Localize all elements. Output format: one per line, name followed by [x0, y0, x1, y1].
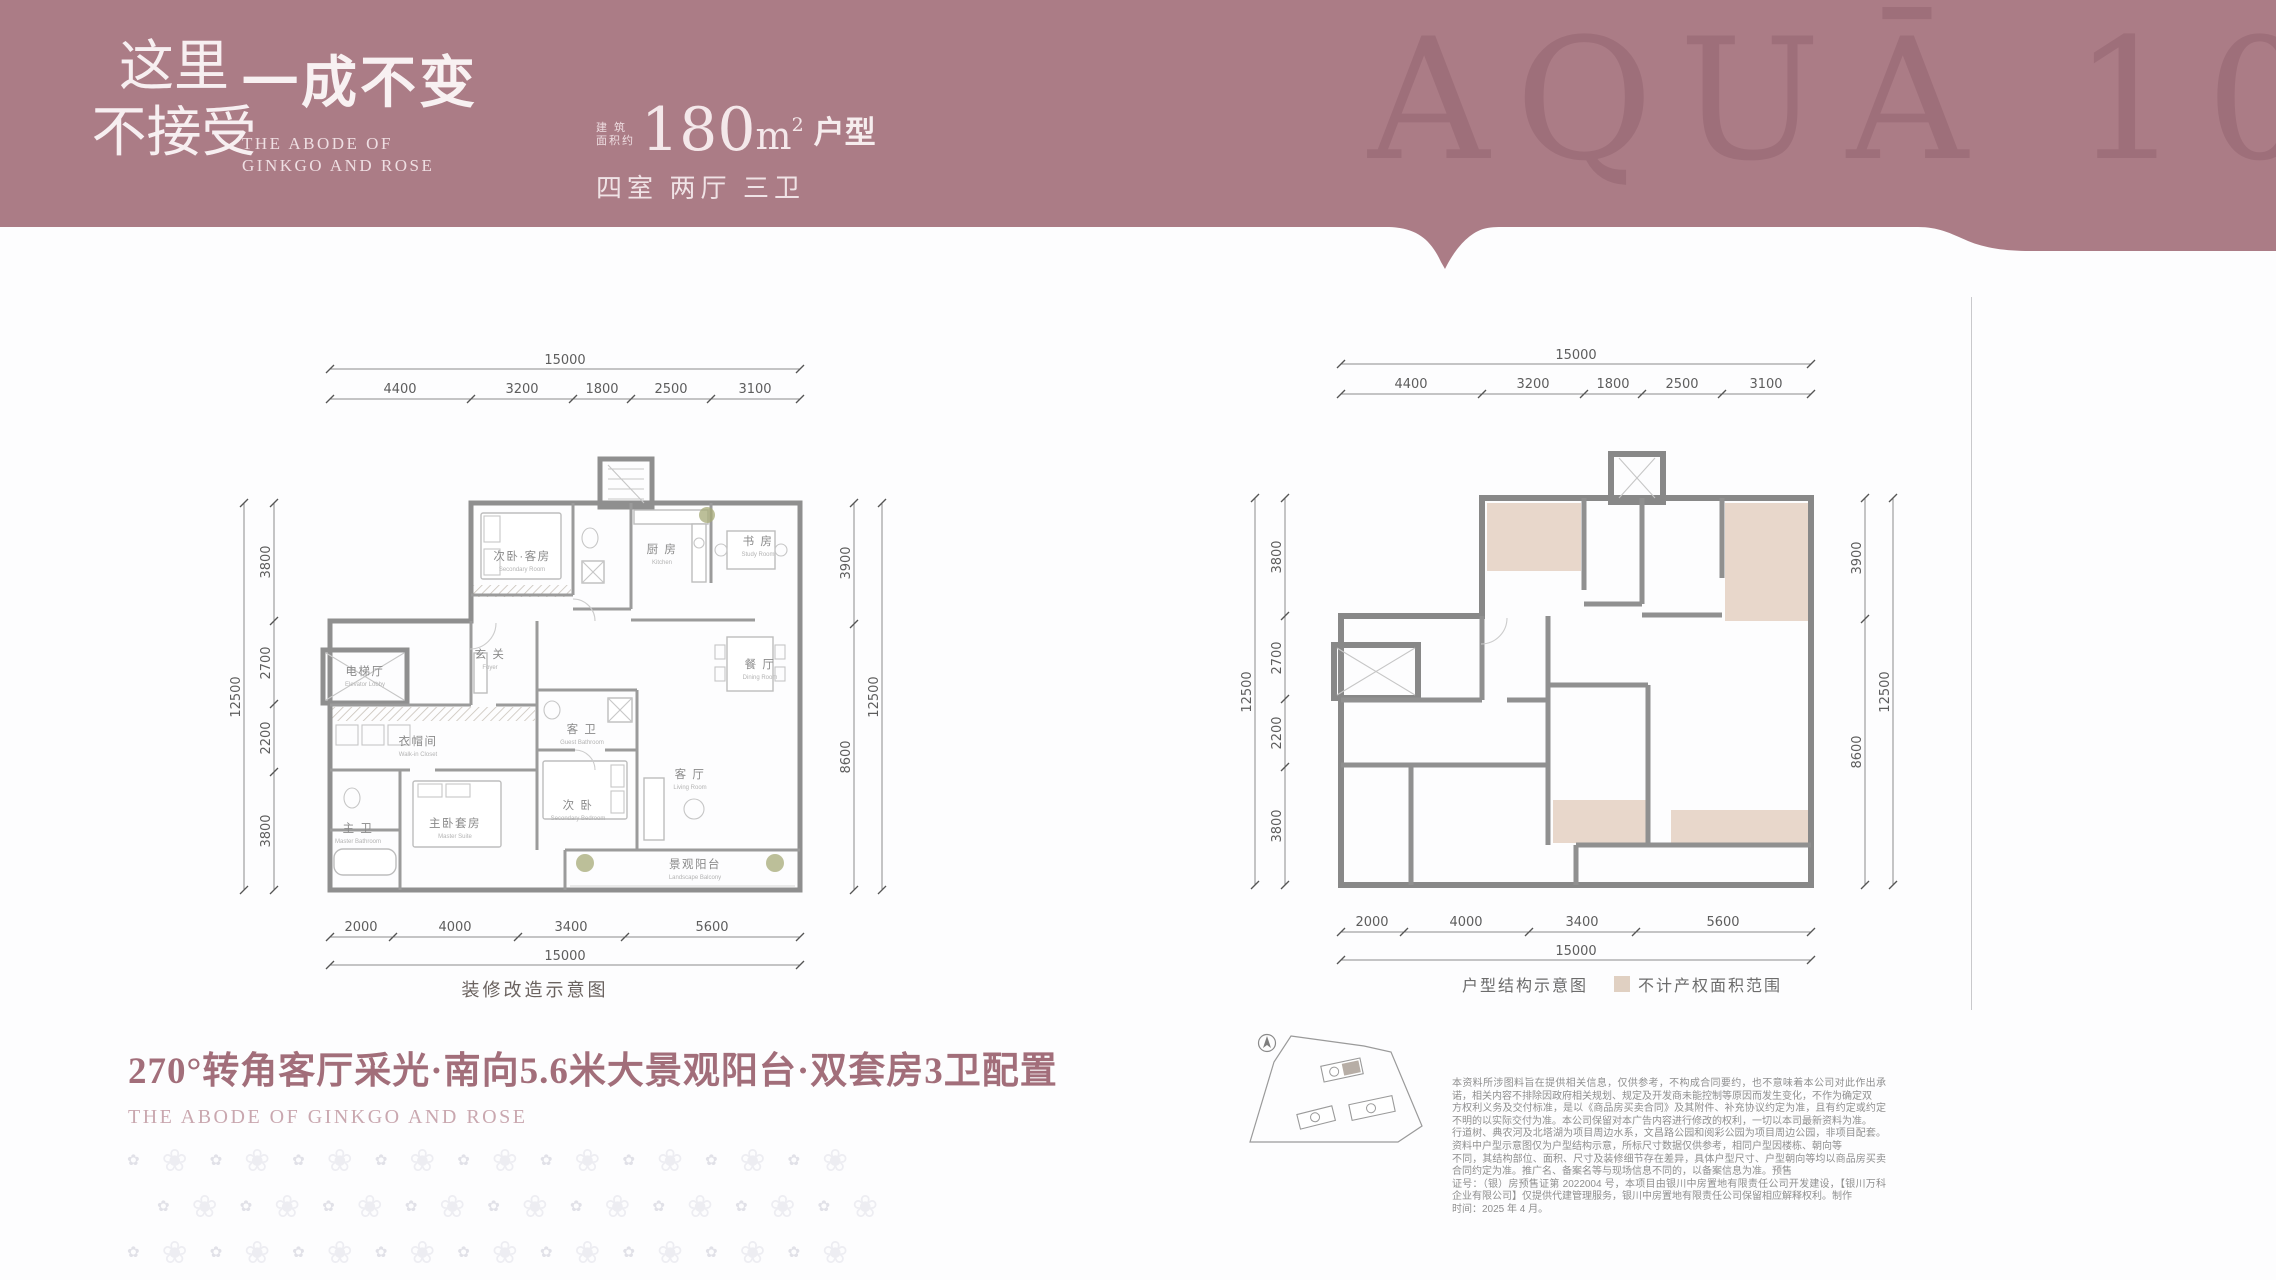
dims-top: 15000 4400 3200 1800 2500 3100: [326, 353, 804, 403]
svg-text:Master Bathroom: Master Bathroom: [335, 839, 381, 845]
svg-text:Guest Bathroom: Guest Bathroom: [560, 740, 604, 746]
svg-text:Secondary Room: Secondary Room: [499, 567, 545, 573]
site-boundary: [1250, 1036, 1422, 1142]
svg-text:电梯厅: 电梯厅: [346, 665, 385, 678]
flower-icon: ❀: [192, 1189, 218, 1224]
flower-icon: ❀: [274, 1189, 300, 1224]
flower-icon: ❀: [492, 1235, 518, 1270]
sofa: [644, 778, 664, 840]
svg-text:Landscape Balcony: Landscape Balcony: [669, 875, 721, 881]
svg-text:次卧·客房: 次卧·客房: [493, 549, 550, 563]
svg-text:15000: 15000: [1555, 348, 1596, 363]
svg-text:3800: 3800: [1270, 809, 1285, 842]
svg-text:3200: 3200: [505, 382, 538, 397]
svg-text:2000: 2000: [1355, 915, 1388, 930]
page-title: 一成不变: [242, 38, 478, 119]
stair-shaft: [600, 459, 652, 507]
rose-icon: ✿: [652, 1198, 665, 1215]
rose-icon: ✿: [210, 1152, 223, 1169]
plant-icon: [766, 854, 784, 872]
flower-icon: ❀: [657, 1143, 683, 1178]
flower-icon: ❀: [162, 1235, 188, 1270]
flower-icon: ❀: [244, 1235, 270, 1270]
svg-text:Elevator Lobby: Elevator Lobby: [345, 682, 385, 688]
flower-icon: ❀: [244, 1143, 270, 1178]
svg-text:8600: 8600: [1850, 735, 1865, 768]
rose-icon: ✿: [405, 1198, 418, 1215]
floor-plan-structure: 15000 4400 3200 1800 2500 3100 12500: [1241, 348, 1941, 1008]
flower-icon: ❀: [492, 1143, 518, 1178]
flower-icon: ❀: [327, 1235, 353, 1270]
svg-text:厨 房: 厨 房: [647, 543, 678, 556]
svg-text:5600: 5600: [695, 920, 728, 935]
svg-text:2200: 2200: [259, 721, 274, 754]
rose-icon: ✿: [622, 1244, 635, 1261]
rose-icon: ✿: [540, 1244, 553, 1261]
flower-icon: ❀: [657, 1235, 683, 1270]
svg-text:景观阳台: 景观阳台: [669, 857, 721, 871]
tagline-block: 270°转角客厅采光·南向5.6米大景观阳台·双套房3卫配置 THE ABODE…: [128, 1040, 1058, 1129]
rose-icon: ✿: [788, 1152, 801, 1169]
svg-text:Walk-in Closet: Walk-in Closet: [399, 752, 438, 758]
flower-icon: ❀: [522, 1189, 548, 1224]
svg-text:Kitchen: Kitchen: [652, 560, 672, 566]
svg-text:3400: 3400: [1565, 915, 1598, 930]
svg-text:餐 厅: 餐 厅: [745, 657, 776, 671]
flower-icon: ❀: [409, 1235, 435, 1270]
svg-text:3800: 3800: [259, 814, 274, 847]
kitchen-counter: [634, 510, 708, 524]
coffee-table: [684, 799, 704, 819]
svg-text:3400: 3400: [554, 920, 587, 935]
svg-text:1800: 1800: [1596, 377, 1629, 392]
svg-text:15000: 15000: [544, 353, 585, 368]
svg-text:2500: 2500: [1665, 377, 1698, 392]
flower-icon: ❀: [327, 1143, 353, 1178]
flower-icon: ❀: [357, 1189, 383, 1224]
flower-pattern: ✿❀✿❀✿❀✿❀✿❀✿❀✿❀✿❀✿❀ ✿❀✿❀✿❀✿❀✿❀✿❀✿❀✿❀✿❀ ✿❀…: [116, 1138, 856, 1276]
slogan-line2: 不接受: [84, 100, 264, 166]
rose-icon: ✿: [322, 1198, 335, 1215]
rose-icon: ✿: [292, 1244, 305, 1261]
svg-text:主卧套房: 主卧套房: [429, 817, 481, 830]
svg-text:8600: 8600: [839, 740, 854, 773]
svg-text:2700: 2700: [259, 646, 274, 679]
rose-icon: ✿: [457, 1152, 470, 1169]
dims-right: 3900 8600 12500: [839, 499, 886, 894]
rose-icon: ✿: [705, 1244, 718, 1261]
rose-icon: ✿: [457, 1244, 470, 1261]
svg-text:3800: 3800: [1270, 540, 1285, 573]
north-compass-icon: [1259, 1035, 1276, 1052]
closet-hatch: [332, 707, 535, 721]
dims-left: 12500 3800 2700 2200 3800: [230, 499, 278, 894]
dims-bottom: 2000 4000 3400 5600 15000: [1337, 915, 1815, 964]
svg-text:1800: 1800: [585, 382, 618, 397]
header-slogan: 这里 不接受: [84, 34, 264, 166]
svg-text:4000: 4000: [438, 920, 471, 935]
toilet-icon: [344, 788, 360, 808]
flower-icon: ❀: [740, 1143, 766, 1178]
rose-icon: ✿: [240, 1198, 253, 1215]
flower-icon: ❀: [162, 1143, 188, 1178]
rose-icon: ✿: [705, 1152, 718, 1169]
rose-icon: ✿: [570, 1198, 583, 1215]
flower-icon: ❀: [439, 1189, 465, 1224]
svg-text:Foyer: Foyer: [482, 665, 497, 671]
rose-icon: ✿: [788, 1244, 801, 1261]
plant-icon: [699, 507, 715, 523]
tagline-en: THE ABODE OF GINKGO AND ROSE: [128, 1106, 1058, 1129]
svg-text:3100: 3100: [738, 382, 771, 397]
right-plan-caption: 户型结构示意图: [1462, 972, 1588, 996]
area-suffix: 户型: [814, 107, 876, 152]
svg-text:15000: 15000: [544, 949, 585, 964]
toilet-icon: [544, 701, 560, 719]
slogan-line1: 这里: [84, 34, 264, 100]
svg-text:玄 关: 玄 关: [475, 647, 506, 661]
disclaimer-text: 本资料所涉图料旨在提供相关信息，仅供参考，不构成合同要约，也不意味着本公司对此作…: [1452, 1078, 1886, 1217]
svg-text:5600: 5600: [1706, 915, 1739, 930]
disclaimer-line: 方权利义务及交付标准，是以《商品房买卖合同》及其附件、补充协议约定为准，且有约定…: [1452, 1103, 1886, 1128]
brand-watermark: AQUĀ 108: [1368, 2, 2276, 198]
svg-text:Secondary Bedroom: Secondary Bedroom: [551, 816, 606, 822]
svg-text:2200: 2200: [1270, 716, 1285, 749]
rose-icon: ✿: [622, 1152, 635, 1169]
dims-top: 15000 4400 3200 1800 2500 3100: [1337, 348, 1815, 398]
rose-icon: ✿: [818, 1198, 831, 1215]
rose-icon: ✿: [375, 1244, 388, 1261]
flower-icon: ❀: [822, 1143, 848, 1178]
dims-bottom: 2000 4000 3400 5600 15000: [326, 920, 804, 969]
svg-text:Master Suite: Master Suite: [438, 834, 472, 840]
flower-icon: ❀: [687, 1189, 713, 1224]
rose-icon: ✿: [735, 1198, 748, 1215]
svg-text:书 房: 书 房: [743, 535, 774, 548]
left-plan-caption: 装修改造示意图: [445, 976, 625, 1002]
toilet-icon: [582, 528, 598, 548]
floor-plan-renovated: 15000 4400 3200 1800 2500 3100 12500: [230, 353, 930, 1013]
right-plan-caption-row: 户型结构示意图 不计产权面积范围: [1462, 972, 1782, 996]
dims-left: 12500 3800 2700 2200 3800: [1241, 494, 1289, 889]
area-unit: m2: [756, 105, 804, 156]
rose-icon: ✿: [127, 1152, 140, 1169]
rose-icon: ✿: [487, 1198, 500, 1215]
svg-text:3900: 3900: [839, 546, 854, 579]
rose-icon: ✿: [540, 1152, 553, 1169]
flower-row: ✿❀✿❀✿❀✿❀✿❀✿❀✿❀✿❀✿❀: [116, 1184, 856, 1230]
header-title-block: 一成不变 THE ABODE OF GINKGO AND ROSE: [242, 38, 478, 177]
subtitle-line1: THE ABODE OF: [242, 133, 478, 155]
disclaimer-line: 本资料所涉图料旨在提供相关信息，仅供参考，不构成合同要约，也不意味着本公司对此作…: [1452, 1078, 1886, 1103]
svg-text:4400: 4400: [383, 382, 416, 397]
svg-text:3200: 3200: [1516, 377, 1549, 392]
area-prefix: 建 筑 面积约: [596, 122, 635, 148]
svg-text:12500: 12500: [1878, 671, 1893, 712]
rose-icon: ✿: [375, 1152, 388, 1169]
svg-text:4400: 4400: [1394, 377, 1427, 392]
rose-icon: ✿: [210, 1244, 223, 1261]
disclaimer-line: 时间：2025 年 4 月。: [1452, 1204, 1886, 1217]
svg-text:Study Room: Study Room: [741, 552, 774, 558]
svg-text:3800: 3800: [259, 545, 274, 578]
flower-row: ✿❀✿❀✿❀✿❀✿❀✿❀✿❀✿❀✿❀: [116, 1230, 856, 1276]
disclaimer-line: 不同，其结构部位、面积、尺寸及装修细节存在差异，具体户型尺寸、户型朝向等均以商品…: [1452, 1154, 1886, 1179]
svg-text:客 厅: 客 厅: [675, 767, 706, 781]
site-plan: [1246, 1026, 1446, 1156]
area-block: 建 筑 面积约 180 m2 户型 四室 两厅 三卫: [596, 104, 876, 205]
flower-icon: ❀: [604, 1189, 630, 1224]
flower-icon: ❀: [740, 1235, 766, 1270]
svg-text:2500: 2500: [654, 382, 687, 397]
svg-text:客 卫: 客 卫: [567, 722, 598, 736]
disclaimer-line: 行道树、典农河及北塔湖为项目周边水系，文昌路公园和阅彩公园为项目周边公园，非项目…: [1452, 1128, 1886, 1153]
poster-page: AQUĀ 108 这里 不接受 一成不变 THE ABODE OF GINKGO…: [0, 0, 2276, 1280]
svg-text:12500: 12500: [1241, 671, 1255, 712]
rose-icon: ✿: [157, 1198, 170, 1215]
subtitle-line2: GINKGO AND ROSE: [242, 155, 478, 177]
bathtub-icon: [334, 849, 396, 875]
non-property-legend-swatch: [1614, 976, 1630, 992]
area-value: 180: [641, 104, 756, 156]
area-exponent: 2: [792, 114, 804, 136]
layout-spec: 四室 两厅 三卫: [596, 168, 876, 205]
flower-icon: ❀: [852, 1189, 878, 1224]
flower-icon: ❀: [574, 1143, 600, 1178]
rose-icon: ✿: [127, 1244, 140, 1261]
svg-text:主 卫: 主 卫: [343, 822, 374, 835]
svg-text:15000: 15000: [1555, 944, 1596, 959]
non-property-legend-label: 不计产权面积范围: [1638, 972, 1782, 996]
site-building-1: [1321, 1058, 1363, 1082]
plant-icon: [576, 854, 594, 872]
svg-text:次 卧: 次 卧: [563, 798, 594, 812]
site-building-2: [1297, 1106, 1336, 1129]
flower-icon: ❀: [574, 1235, 600, 1270]
flower-icon: ❀: [822, 1235, 848, 1270]
rose-icon: ✿: [292, 1152, 305, 1169]
flower-icon: ❀: [770, 1189, 796, 1224]
svg-text:3100: 3100: [1749, 377, 1782, 392]
svg-text:4000: 4000: [1449, 915, 1482, 930]
tagline-cn: 270°转角客厅采光·南向5.6米大景观阳台·双套房3卫配置: [128, 1040, 1058, 1094]
svg-text:12500: 12500: [867, 676, 882, 717]
disclaimer-line: 证号：（银）房预售证第 2022004 号，本项目由银川中房置地有限责任公司开发…: [1452, 1179, 1886, 1204]
flower-icon: ❀: [409, 1143, 435, 1178]
svg-text:衣帽间: 衣帽间: [399, 734, 438, 748]
svg-text:3900: 3900: [1850, 541, 1865, 574]
svg-text:2000: 2000: [344, 920, 377, 935]
page-divider-line: [1971, 297, 1972, 1010]
dims-right: 3900 8600 12500: [1850, 494, 1897, 889]
svg-text:Dining Room: Dining Room: [743, 675, 778, 681]
svg-text:2700: 2700: [1270, 641, 1285, 674]
page-subtitle: THE ABODE OF GINKGO AND ROSE: [242, 133, 478, 177]
flower-row: ✿❀✿❀✿❀✿❀✿❀✿❀✿❀✿❀✿❀: [116, 1138, 856, 1184]
entry-door-arc: [470, 623, 496, 649]
svg-text:Living Room: Living Room: [673, 785, 706, 791]
site-building-3: [1349, 1096, 1395, 1121]
svg-text:12500: 12500: [230, 676, 244, 717]
